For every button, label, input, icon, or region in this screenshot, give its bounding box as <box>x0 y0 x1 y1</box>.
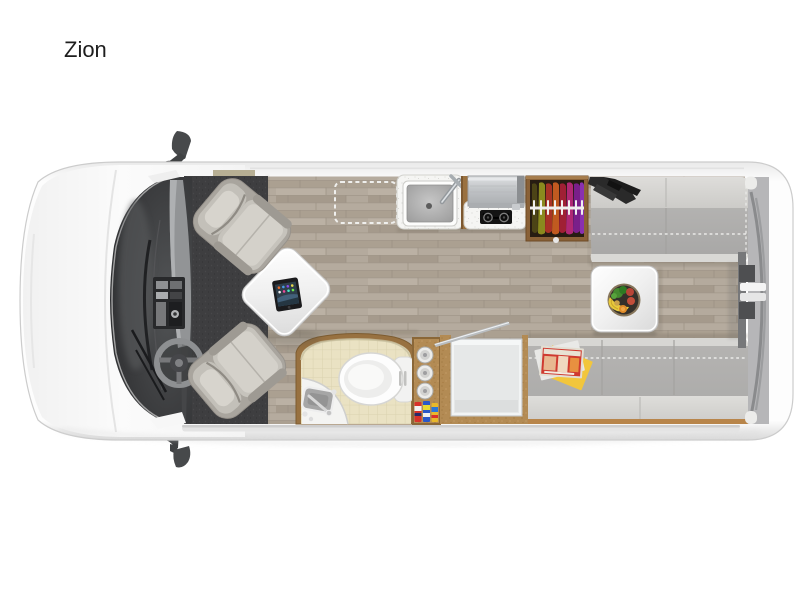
svg-text:Zion: Zion <box>64 37 107 62</box>
